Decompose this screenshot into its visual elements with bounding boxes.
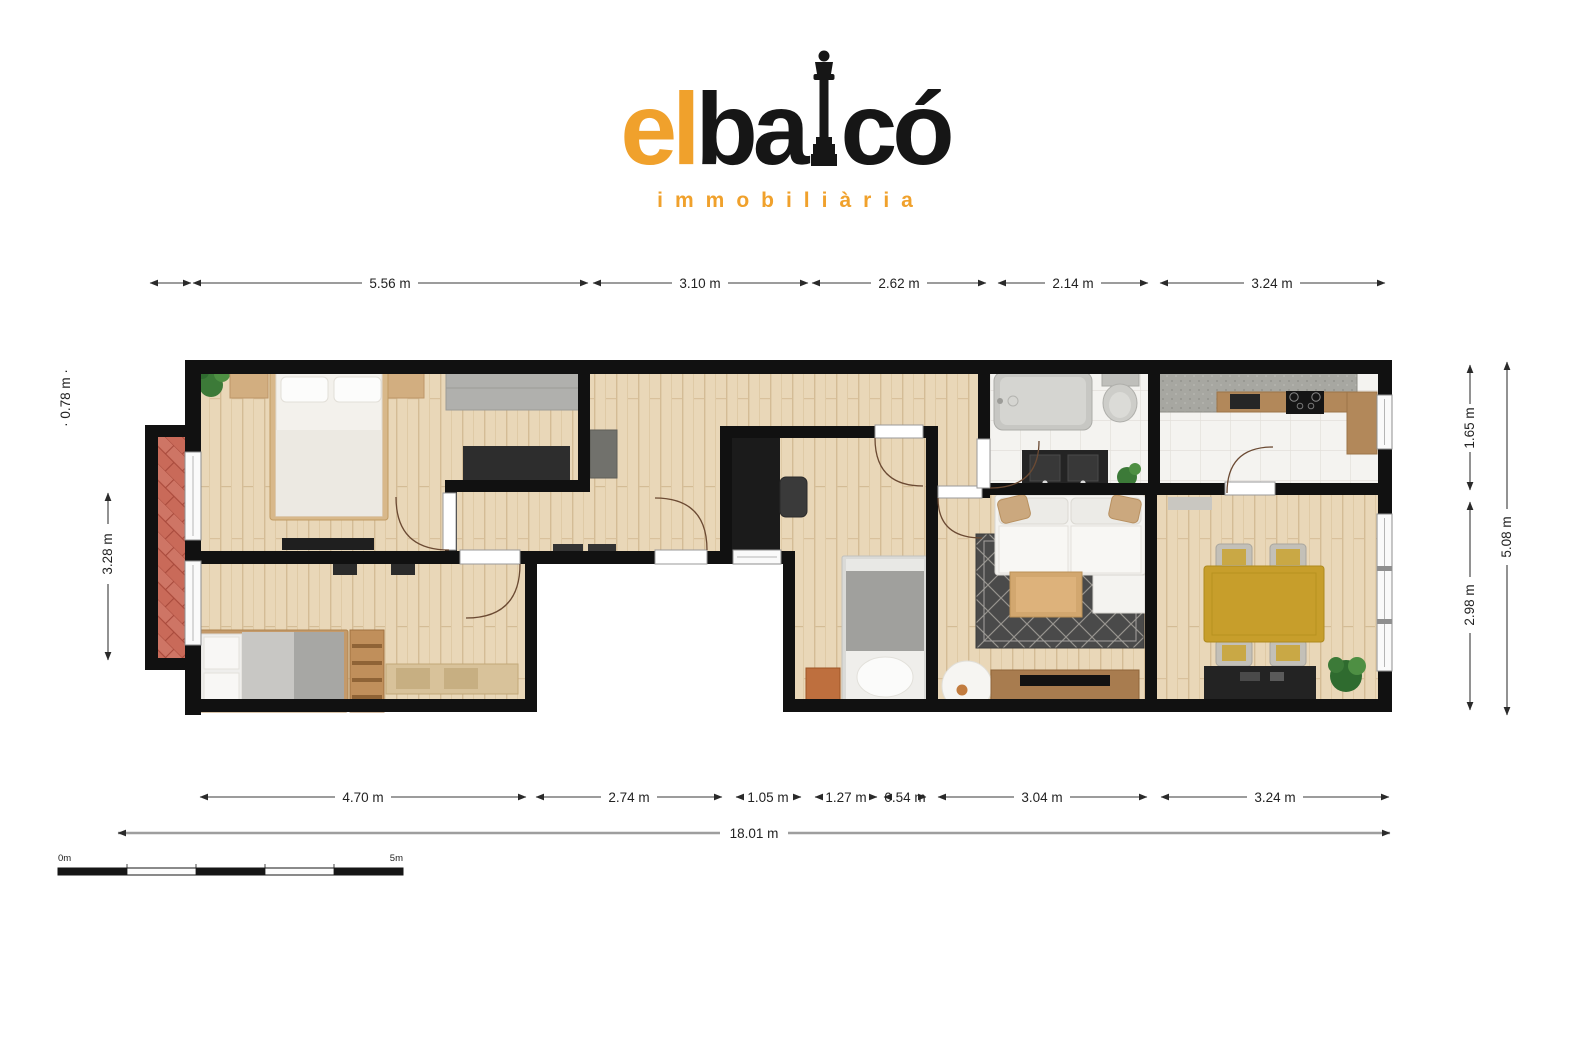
hall-cabinet bbox=[590, 430, 617, 478]
window-balcony-bedroom1 bbox=[185, 452, 201, 540]
bathtub bbox=[994, 372, 1092, 430]
window-dining bbox=[1377, 514, 1392, 671]
dim-label: 3.10 m bbox=[679, 276, 720, 291]
storage-bench bbox=[386, 664, 518, 694]
floor-plan-canvas: 5.56 m 3.10 m 2.62 m 2.14 m 3.24 m 4.70 … bbox=[0, 0, 1570, 1047]
dim-label: 5.08 m bbox=[1499, 516, 1514, 557]
dim-label: 1.27 m bbox=[825, 790, 866, 805]
radiator-2 bbox=[588, 544, 616, 551]
dim-total-width: 18.01 m bbox=[118, 826, 1390, 841]
double-bed bbox=[270, 368, 388, 520]
nightstand-left bbox=[230, 370, 268, 398]
dim-label: 1.05 m bbox=[747, 790, 788, 805]
double-vanity bbox=[1022, 450, 1108, 487]
coffee-table bbox=[1010, 572, 1082, 617]
dim-label: 3.24 m bbox=[1254, 790, 1295, 805]
radiator-1 bbox=[553, 544, 583, 551]
dim-label: 18.01 m bbox=[730, 826, 779, 841]
window-kitchen bbox=[1377, 395, 1392, 449]
dim-label: 4.70 m bbox=[342, 790, 383, 805]
dim-label: 0.54 m bbox=[884, 790, 925, 805]
dim-label: · 0.78 m · bbox=[58, 369, 73, 427]
dim-bottom-row: 4.70 m 2.74 m 1.05 m 1.27 m 0.54 m 3.04 … bbox=[200, 790, 1389, 805]
stairwell-notch bbox=[537, 564, 783, 712]
desk-chair bbox=[780, 477, 807, 517]
wall-rack-1 bbox=[333, 564, 357, 575]
dim-left-column: · 0.78 m · 3.28 m bbox=[58, 369, 115, 660]
balcony-wall bbox=[145, 425, 201, 437]
dresser bbox=[463, 446, 570, 480]
stove bbox=[1286, 391, 1324, 414]
counter-wood-side bbox=[1347, 392, 1377, 454]
dim-label: 2.62 m bbox=[878, 276, 919, 291]
tv-sideboard bbox=[991, 670, 1139, 702]
page: elbacó immobiliària bbox=[0, 0, 1570, 1047]
dining-sideboard bbox=[1204, 666, 1316, 704]
balcony-floor bbox=[158, 437, 186, 658]
scale-start-label: 0m bbox=[58, 853, 71, 864]
window-bedroom3 bbox=[733, 550, 781, 564]
wall-rack-2 bbox=[391, 564, 415, 575]
dim-label: 3.24 m bbox=[1251, 276, 1292, 291]
scale-end-label: 5m bbox=[390, 853, 403, 864]
single-bed-vertical bbox=[842, 556, 928, 708]
window-balcony-bedroom2 bbox=[185, 561, 201, 645]
balcony-wall bbox=[145, 425, 158, 670]
low-shelf bbox=[282, 538, 374, 550]
toilet bbox=[1102, 372, 1139, 422]
dim-label: 2.14 m bbox=[1052, 276, 1093, 291]
nightstand-right bbox=[386, 370, 424, 398]
desk-unit bbox=[732, 438, 780, 552]
dim-right-columns: 1.65 m 2.98 m 5.08 m bbox=[1462, 362, 1514, 715]
dim-label: 1.65 m bbox=[1462, 407, 1477, 448]
kitchen-sink bbox=[1230, 394, 1260, 409]
dim-label: 3.04 m bbox=[1021, 790, 1062, 805]
dim-label: 2.98 m bbox=[1462, 584, 1477, 625]
door-mat bbox=[1168, 497, 1212, 510]
dim-label: 3.28 m bbox=[100, 533, 115, 574]
nightstand-terracotta bbox=[806, 668, 840, 702]
dining-table bbox=[1204, 566, 1324, 642]
tv bbox=[1020, 675, 1110, 686]
dim-label: 2.74 m bbox=[608, 790, 649, 805]
scale-bar: 0m 5m bbox=[58, 853, 403, 875]
dim-top-row: 5.56 m 3.10 m 2.62 m 2.14 m 3.24 m bbox=[150, 276, 1385, 291]
dim-label: 5.56 m bbox=[369, 276, 410, 291]
balcony-wall bbox=[145, 658, 201, 670]
